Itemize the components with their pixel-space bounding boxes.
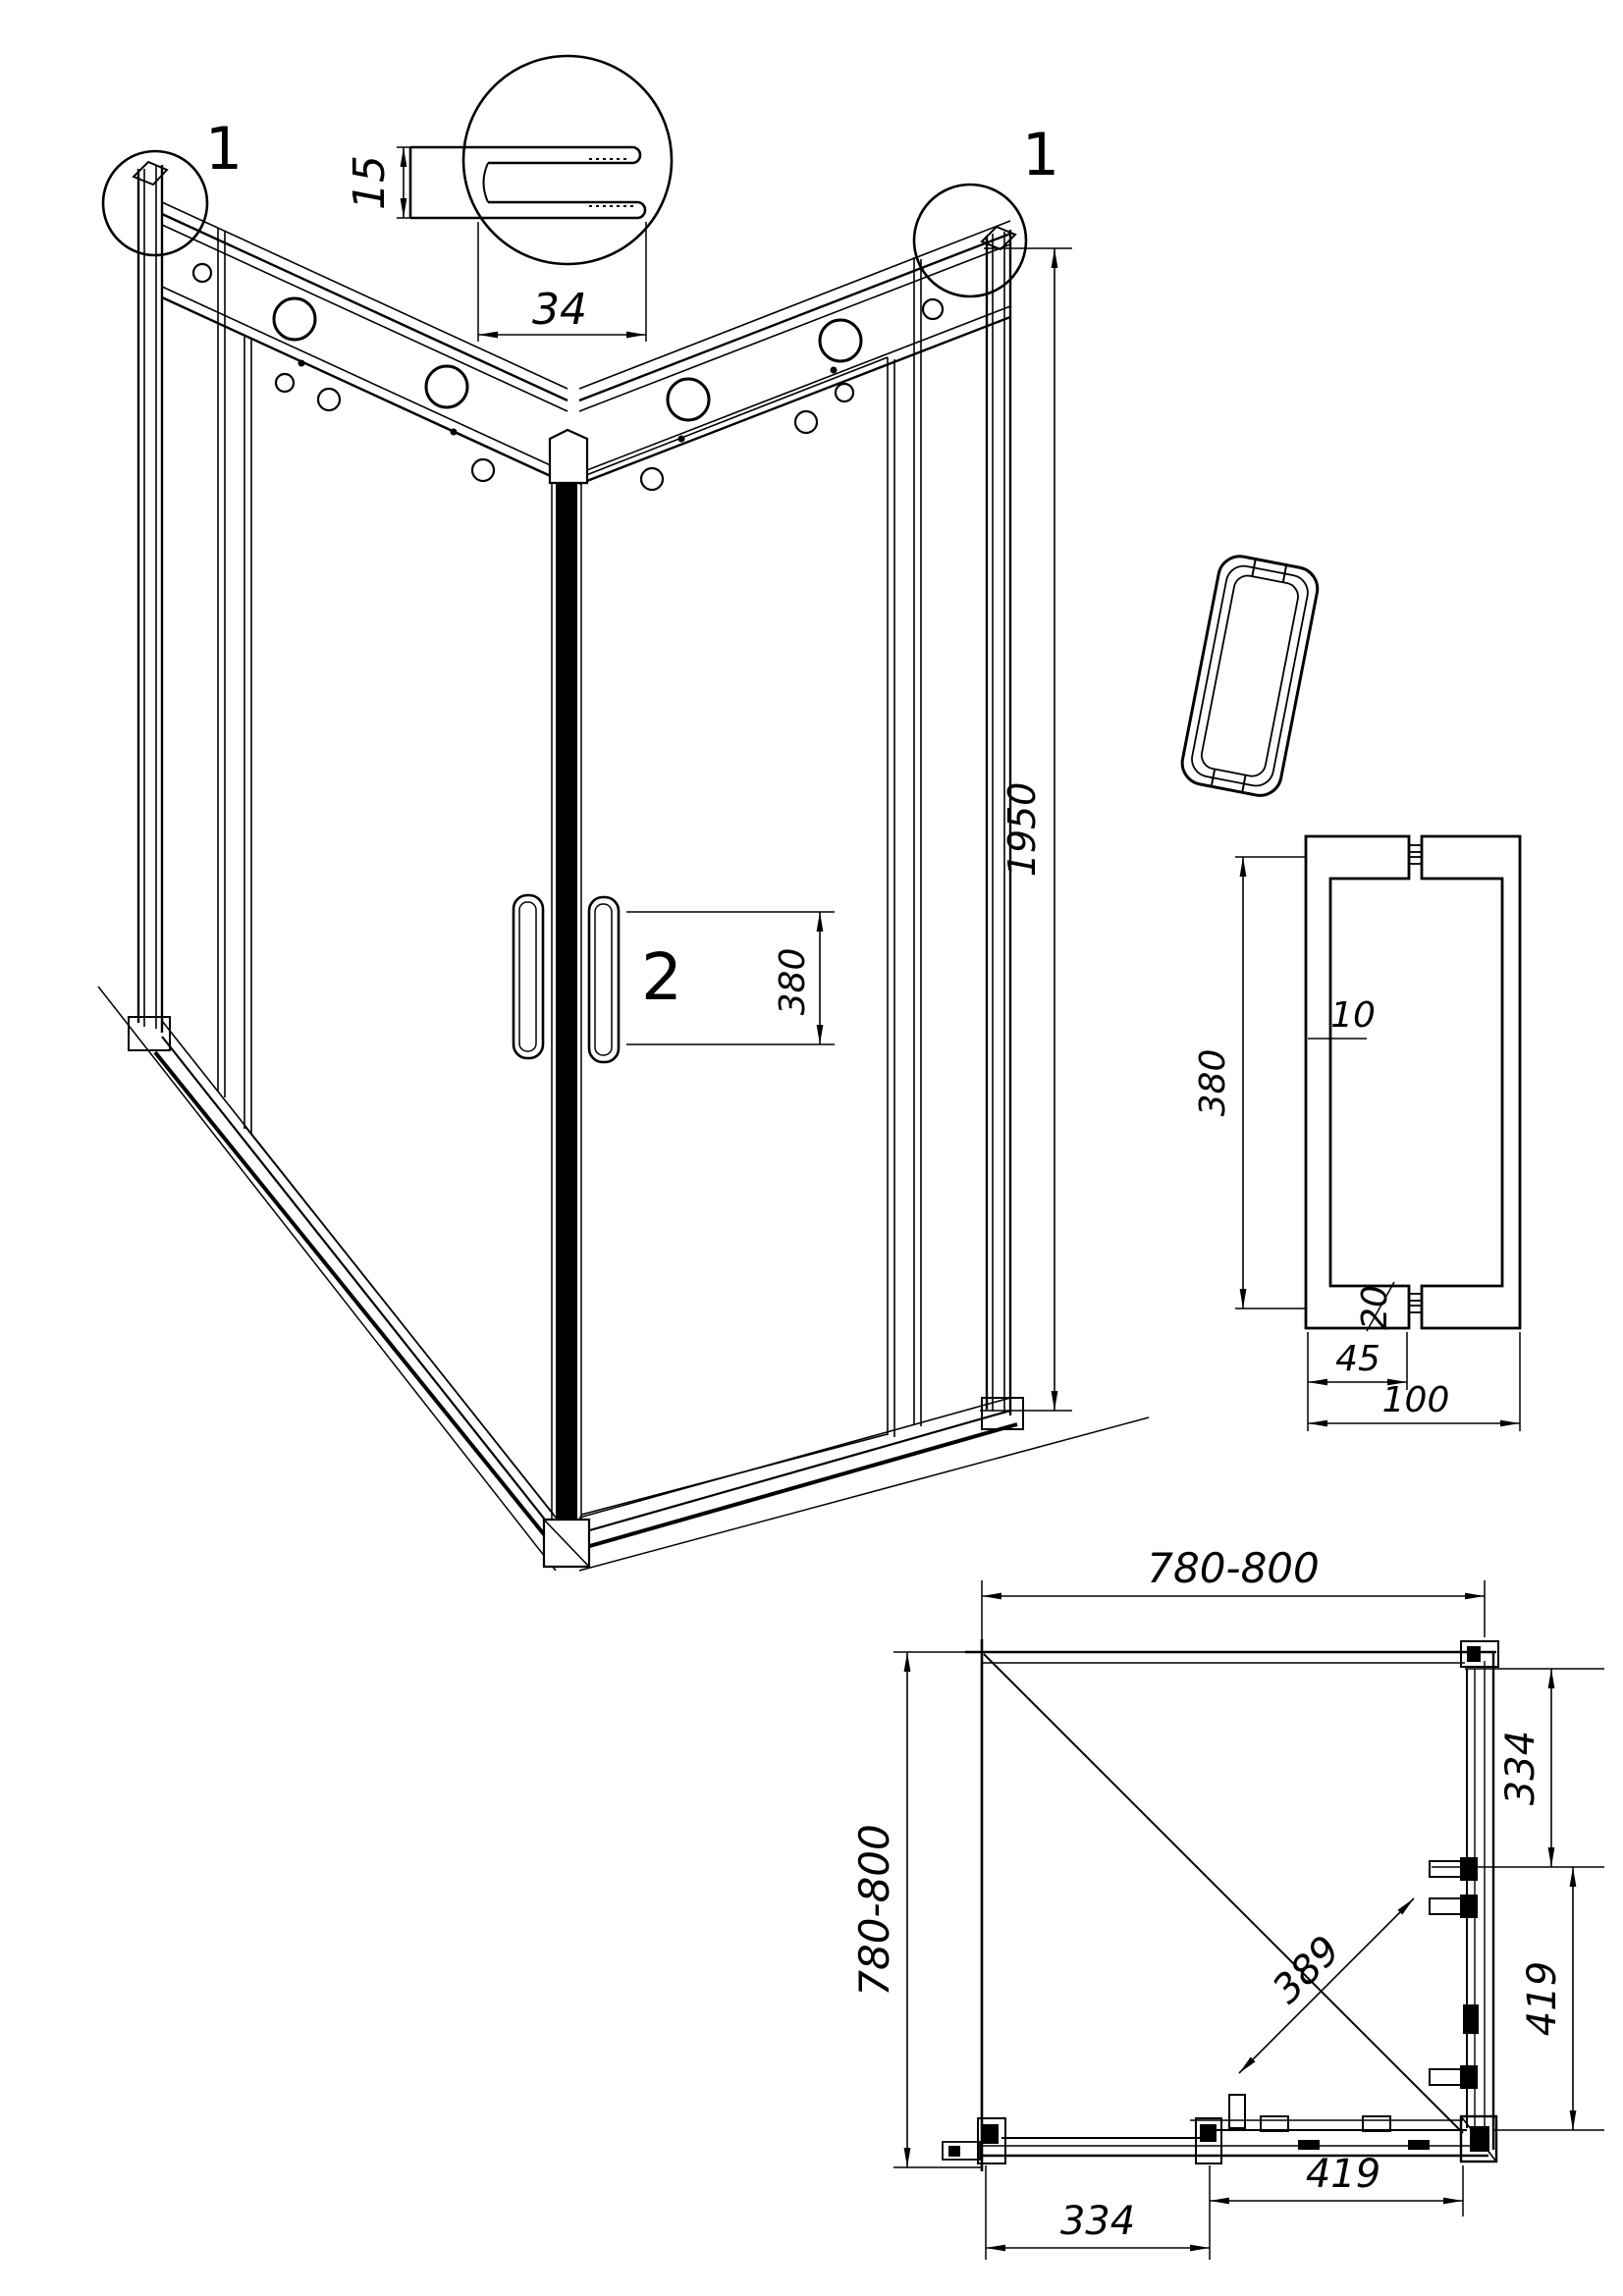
dim-20: 20 [1355,1285,1395,1330]
technical-drawing-page: 380 2 1950 1 1 [0,0,1623,2296]
left-wall-profile [129,162,170,1050]
dim-plan-bottom: 419 334 [986,2152,1463,2260]
detail-marker-1-left: 1 [205,115,243,184]
dim-overall-height: 1950 [980,248,1072,1411]
u-profile-section [410,147,645,218]
dim-389: 389 [1265,1928,1350,2013]
dim-handle-length: 380 [1193,857,1306,1308]
dim-419-bottom: 419 [1306,2152,1380,2197]
door-handle-left [514,895,543,1058]
bottom-tracks [98,987,1149,1571]
dim-15: 15 [345,155,395,210]
dim-100: 100 [1382,1380,1450,1420]
dim-handle-bar: 10 [1308,995,1376,1039]
dim-45: 45 [1335,1339,1380,1379]
dim-419-right: 419 [1520,1961,1565,2036]
dim-plan-diagonal: 389 [1239,1898,1414,2073]
dim-380-handle: 380 [1193,1049,1233,1117]
dim-780-800-top: 780-800 [1147,1544,1320,1592]
plan-view: 389 780-800 780-800 334 419 [850,1544,1604,2260]
corner-post [544,430,589,1567]
door-handle-right [589,897,619,1062]
dim-plan-depth: 780-800 [850,1652,982,2167]
plan-right-wall [1430,1641,1498,2150]
dim-handle-spacing-main: 380 2 [626,912,835,1044]
profile-detail-view: 15 34 [345,56,672,342]
dim-10: 10 [1330,995,1376,1036]
dim-profile-depth: 34 [478,222,646,342]
detail-marker-1-right: 1 [1022,121,1059,189]
dim-plan-width: 780-800 [982,1544,1485,1645]
dim-handle-boss: 20 [1355,1282,1395,1331]
dim-780-800-left: 780-800 [850,1824,898,1997]
detail-marker-2: 2 [641,939,682,1015]
dim-334-bottom: 334 [1060,2199,1135,2244]
glass-panels [162,228,1010,1518]
dim-profile-height: 15 [345,147,411,218]
handle-side-view: 380 10 20 45 100 [1193,836,1520,1431]
handle-isometric-view [1178,553,1321,799]
dim-380-main: 380 [773,948,813,1016]
dim-334-right: 334 [1498,1731,1543,1805]
dim-1950: 1950 [1001,782,1044,878]
plan-bottom-wall [943,2095,1496,2163]
main-isometric-view: 380 2 1950 1 1 [98,115,1149,1571]
detail-circle-left: 1 [103,115,243,255]
shower-enclosure-drawing: 380 2 1950 1 1 [0,0,1623,2296]
dim-34: 34 [532,285,587,335]
